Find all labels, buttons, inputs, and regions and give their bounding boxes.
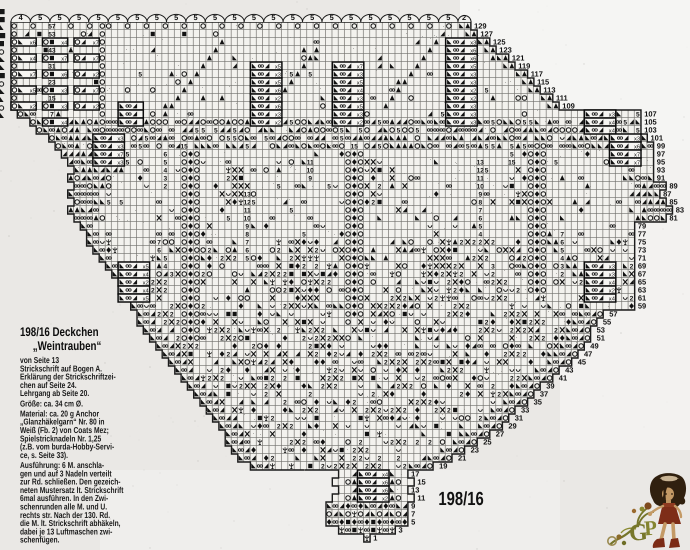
svg-text:59: 59 — [638, 302, 646, 311]
svg-text:2: 2 — [371, 391, 375, 398]
svg-text:2: 2 — [460, 367, 464, 374]
svg-text:27: 27 — [496, 430, 504, 439]
svg-text:2: 2 — [283, 271, 287, 278]
svg-text:5: 5 — [116, 13, 120, 22]
svg-text:2: 2 — [327, 279, 331, 286]
svg-text:5: 5 — [245, 143, 249, 150]
svg-text:5: 5 — [245, 255, 249, 262]
svg-text:x2: x2 — [275, 119, 281, 126]
svg-text:10: 10 — [244, 215, 252, 222]
svg-text:2: 2 — [403, 295, 407, 302]
svg-text:1: 1 — [373, 534, 377, 543]
svg-text:2: 2 — [334, 367, 338, 374]
svg-text:2: 2 — [378, 455, 382, 462]
svg-text:2: 2 — [226, 327, 230, 334]
svg-text:2: 2 — [523, 327, 527, 334]
svg-text:2: 2 — [529, 319, 533, 326]
svg-text:2: 2 — [491, 295, 495, 302]
svg-text:2: 2 — [208, 247, 212, 254]
svg-text:2: 2 — [302, 335, 306, 342]
svg-text:23: 23 — [471, 446, 479, 455]
svg-text:91: 91 — [657, 174, 665, 183]
svg-text:198/16: 198/16 — [438, 489, 483, 510]
svg-text:2: 2 — [491, 239, 495, 246]
svg-text:11: 11 — [477, 175, 484, 182]
svg-text:2: 2 — [371, 351, 375, 358]
svg-text:x2: x2 — [93, 103, 99, 110]
svg-text:2: 2 — [516, 351, 520, 358]
svg-text:2: 2 — [630, 263, 634, 270]
svg-text:2: 2 — [510, 327, 514, 334]
svg-text:2: 2 — [460, 311, 464, 318]
svg-text:5: 5 — [302, 231, 306, 238]
svg-text:x7: x7 — [61, 56, 67, 62]
svg-text:2: 2 — [441, 271, 445, 278]
svg-text:57: 57 — [48, 23, 56, 30]
svg-text:5: 5 — [349, 13, 353, 22]
svg-text:x2: x2 — [30, 103, 36, 110]
svg-text:2: 2 — [428, 399, 432, 406]
svg-text:5: 5 — [201, 127, 205, 134]
svg-text:x2: x2 — [357, 119, 363, 126]
svg-text:x4: x4 — [30, 56, 37, 62]
svg-text:2: 2 — [447, 367, 451, 374]
svg-text:2: 2 — [271, 415, 275, 422]
svg-text:5: 5 — [126, 151, 130, 158]
svg-text:2: 2 — [283, 375, 287, 382]
svg-text:81: 81 — [669, 214, 677, 223]
svg-text:x4: x4 — [61, 40, 68, 46]
svg-text:2: 2 — [365, 447, 369, 454]
svg-text:5: 5 — [264, 135, 268, 142]
svg-text:2: 2 — [478, 239, 482, 246]
svg-text:7: 7 — [560, 231, 564, 238]
svg-text:5: 5 — [415, 127, 419, 134]
svg-text:2: 2 — [478, 415, 482, 422]
svg-text:2: 2 — [397, 359, 401, 366]
svg-text:2: 2 — [151, 279, 155, 286]
svg-text:x3: x3 — [61, 87, 67, 94]
svg-text:2: 2 — [478, 327, 482, 334]
svg-text:2: 2 — [485, 319, 489, 326]
svg-text:2: 2 — [220, 335, 224, 342]
svg-text:2: 2 — [151, 287, 155, 294]
svg-text:113: 113 — [543, 86, 555, 95]
svg-text:127: 127 — [480, 30, 493, 39]
svg-text:2: 2 — [523, 255, 527, 262]
svg-text:x4: x4 — [61, 120, 68, 126]
svg-text:2: 2 — [208, 375, 212, 382]
svg-text:5: 5 — [491, 143, 495, 150]
svg-text:2: 2 — [321, 383, 325, 390]
svg-text:5: 5 — [38, 13, 42, 22]
svg-text:x5: x5 — [30, 88, 36, 94]
svg-text:2: 2 — [403, 407, 407, 414]
svg-text:2: 2 — [283, 287, 287, 294]
svg-text:2: 2 — [579, 279, 583, 286]
svg-text:2: 2 — [289, 255, 293, 262]
svg-text:2: 2 — [308, 343, 312, 350]
svg-text:2: 2 — [378, 407, 382, 414]
svg-text:5: 5 — [427, 13, 431, 22]
svg-text:35: 35 — [534, 398, 542, 407]
svg-text:7: 7 — [157, 239, 161, 246]
svg-text:2: 2 — [504, 351, 508, 358]
svg-text:x2: x2 — [382, 495, 388, 502]
svg-text:11: 11 — [244, 207, 251, 214]
svg-text:2: 2 — [157, 311, 161, 318]
svg-text:2: 2 — [315, 247, 319, 254]
svg-text:123: 123 — [499, 46, 512, 55]
svg-text:2: 2 — [447, 407, 451, 414]
svg-text:5: 5 — [96, 13, 100, 22]
svg-text:2: 2 — [560, 271, 564, 278]
svg-text:19: 19 — [439, 462, 447, 471]
svg-text:2: 2 — [403, 463, 407, 470]
svg-text:6: 6 — [478, 215, 482, 222]
svg-text:2: 2 — [201, 271, 205, 278]
svg-text:2: 2 — [346, 463, 350, 470]
svg-text:2: 2 — [195, 343, 199, 350]
svg-text:2: 2 — [504, 295, 508, 302]
svg-text:2: 2 — [491, 279, 495, 286]
svg-text:4: 4 — [560, 255, 564, 262]
svg-text:2: 2 — [497, 391, 501, 398]
svg-text:5: 5 — [233, 127, 237, 134]
svg-text:5: 5 — [378, 119, 382, 126]
svg-text:2: 2 — [491, 383, 495, 390]
svg-text:5: 5 — [411, 518, 415, 527]
svg-text:5: 5 — [510, 151, 514, 158]
svg-text:2: 2 — [453, 303, 457, 310]
svg-text:2: 2 — [447, 311, 451, 318]
svg-text:8: 8 — [245, 231, 249, 238]
svg-text:2: 2 — [541, 319, 545, 326]
svg-text:2: 2 — [321, 463, 325, 470]
svg-text:2: 2 — [390, 407, 394, 414]
svg-text:2: 2 — [428, 359, 432, 366]
svg-text:6: 6 — [157, 247, 161, 254]
svg-text:5: 5 — [330, 13, 334, 22]
svg-text:2: 2 — [415, 399, 419, 406]
svg-text:5: 5 — [485, 143, 489, 150]
svg-text:5: 5 — [226, 215, 230, 222]
svg-text:21: 21 — [458, 454, 466, 463]
svg-text:2: 2 — [447, 279, 451, 286]
svg-text:5: 5 — [145, 135, 149, 142]
svg-text:2: 2 — [397, 303, 401, 310]
svg-text:x7: x7 — [634, 160, 640, 166]
svg-text:5: 5 — [126, 159, 130, 166]
svg-text:2: 2 — [176, 319, 180, 326]
svg-text:2: 2 — [409, 383, 413, 390]
svg-text:5: 5 — [138, 71, 142, 78]
svg-text:2: 2 — [214, 327, 218, 334]
svg-text:4: 4 — [163, 167, 167, 174]
svg-text:29: 29 — [508, 422, 516, 431]
svg-text:2: 2 — [352, 399, 356, 406]
svg-text:2: 2 — [302, 439, 306, 446]
svg-text:x5: x5 — [143, 296, 149, 302]
svg-text:2: 2 — [390, 295, 394, 302]
svg-text:2: 2 — [264, 271, 268, 278]
svg-text:11: 11 — [307, 159, 314, 166]
svg-text:2: 2 — [434, 407, 438, 414]
svg-text:2: 2 — [327, 335, 331, 342]
svg-text:2: 2 — [182, 343, 186, 350]
svg-text:ce, s. Seite 33).: ce, s. Seite 33). — [20, 450, 68, 460]
svg-text:7: 7 — [245, 239, 249, 246]
svg-text:2: 2 — [453, 287, 457, 294]
svg-text:13: 13 — [244, 191, 252, 198]
svg-text:2: 2 — [504, 311, 508, 318]
svg-text:2: 2 — [630, 295, 634, 302]
svg-text:2: 2 — [252, 343, 256, 350]
svg-text:2: 2 — [239, 383, 243, 390]
svg-text:2: 2 — [302, 407, 306, 414]
svg-text:x4: x4 — [609, 296, 616, 302]
svg-text:5: 5 — [623, 119, 627, 126]
svg-text:2: 2 — [264, 359, 268, 366]
svg-text:2: 2 — [334, 463, 338, 470]
svg-text:2: 2 — [554, 327, 558, 334]
svg-text:5: 5 — [523, 119, 527, 126]
svg-text:„Weintrauben“: „Weintrauben“ — [33, 339, 102, 353]
svg-text:6: 6 — [163, 151, 167, 158]
svg-text:5: 5 — [252, 199, 256, 206]
svg-text:5: 5 — [194, 13, 198, 22]
svg-text:2: 2 — [428, 439, 432, 446]
svg-text:5: 5 — [214, 127, 218, 134]
svg-text:2: 2 — [220, 375, 224, 382]
svg-text:5: 5 — [135, 13, 139, 22]
svg-text:2: 2 — [434, 295, 438, 302]
svg-text:2: 2 — [163, 279, 167, 286]
svg-text:2: 2 — [176, 335, 180, 342]
svg-text:2: 2 — [334, 383, 338, 390]
svg-text:2: 2 — [277, 247, 281, 254]
svg-text:2: 2 — [422, 375, 426, 382]
svg-text:5: 5 — [636, 111, 640, 118]
svg-text:5: 5 — [174, 13, 178, 22]
svg-text:2: 2 — [485, 255, 489, 262]
svg-text:5: 5 — [289, 207, 293, 214]
svg-text:5: 5 — [271, 13, 275, 22]
svg-text:2: 2 — [308, 391, 312, 398]
svg-text:5: 5 — [388, 13, 392, 22]
svg-text:P: P — [643, 516, 658, 541]
svg-text:5: 5 — [446, 13, 450, 22]
svg-text:198/16 Deckchen: 198/16 Deckchen — [20, 325, 99, 339]
svg-text:x7: x7 — [93, 56, 99, 62]
svg-text:x3: x3 — [117, 159, 123, 166]
svg-text:2: 2 — [415, 351, 419, 358]
svg-text:5: 5 — [163, 159, 167, 166]
svg-text:5: 5 — [291, 13, 295, 22]
svg-text:5: 5 — [478, 223, 482, 230]
svg-text:2: 2 — [315, 407, 319, 414]
svg-text:5: 5 — [554, 159, 558, 166]
svg-text:2: 2 — [384, 303, 388, 310]
svg-text:9: 9 — [245, 223, 249, 230]
svg-text:2: 2 — [359, 439, 363, 446]
svg-text:Lehrgang ab Seite 20.: Lehrgang ab Seite 20. — [20, 388, 89, 398]
svg-text:2: 2 — [277, 423, 281, 430]
svg-text:10: 10 — [477, 183, 485, 190]
svg-text:11: 11 — [417, 494, 425, 503]
svg-text:10: 10 — [307, 167, 315, 174]
svg-text:2: 2 — [233, 255, 237, 262]
svg-text:5: 5 — [466, 143, 470, 150]
svg-text:13: 13 — [477, 159, 485, 166]
svg-text:5: 5 — [359, 127, 363, 134]
svg-text:2: 2 — [271, 375, 275, 382]
svg-text:45: 45 — [578, 358, 586, 367]
svg-text:2: 2 — [340, 375, 344, 382]
svg-text:3: 3 — [560, 263, 564, 270]
svg-text:2: 2 — [415, 439, 419, 446]
svg-text:25: 25 — [483, 438, 491, 447]
svg-text:2: 2 — [233, 335, 237, 342]
svg-text:5: 5 — [485, 87, 489, 94]
svg-text:2: 2 — [226, 175, 230, 182]
svg-text:2: 2 — [460, 271, 464, 278]
svg-text:2: 2 — [163, 183, 167, 190]
svg-text:2: 2 — [277, 271, 281, 278]
svg-text:41: 41 — [559, 374, 567, 383]
svg-text:15: 15 — [181, 143, 189, 150]
svg-text:5: 5 — [407, 13, 411, 22]
svg-text:2: 2 — [390, 439, 394, 446]
svg-text:5: 5 — [378, 143, 382, 150]
svg-text:2: 2 — [397, 455, 401, 462]
svg-text:9: 9 — [478, 191, 482, 198]
svg-text:2: 2 — [271, 455, 275, 462]
svg-text:2: 2 — [504, 279, 508, 286]
svg-text:2: 2 — [359, 455, 363, 462]
svg-text:2: 2 — [384, 351, 388, 358]
svg-text:schenfügen.: schenfügen. — [20, 535, 59, 545]
svg-text:5: 5 — [163, 255, 167, 262]
svg-text:5: 5 — [226, 135, 230, 142]
svg-text:5: 5 — [252, 13, 256, 22]
svg-text:15: 15 — [508, 159, 516, 166]
svg-text:2: 2 — [315, 351, 319, 358]
svg-text:2: 2 — [277, 327, 281, 334]
svg-text:2: 2 — [466, 303, 470, 310]
svg-text:5: 5 — [340, 127, 344, 134]
svg-text:3: 3 — [163, 175, 167, 182]
svg-text:5: 5 — [560, 247, 564, 254]
svg-text:5: 5 — [441, 111, 445, 118]
svg-text:x6: x6 — [61, 71, 67, 78]
svg-text:2: 2 — [220, 255, 224, 262]
svg-text:5: 5 — [397, 127, 401, 134]
svg-text:5: 5 — [277, 183, 281, 190]
svg-text:5: 5 — [213, 13, 217, 22]
svg-text:4: 4 — [163, 263, 167, 270]
svg-text:2: 2 — [163, 319, 167, 326]
svg-text:2: 2 — [403, 439, 407, 446]
svg-text:2: 2 — [529, 335, 533, 342]
svg-text:x6: x6 — [30, 39, 36, 46]
svg-text:2: 2 — [334, 351, 338, 358]
svg-text:2: 2 — [315, 263, 319, 270]
svg-text:5: 5 — [523, 143, 527, 150]
svg-text:8: 8 — [478, 199, 482, 206]
svg-text:5: 5 — [529, 119, 533, 126]
svg-text:5: 5 — [289, 71, 293, 78]
svg-text:12: 12 — [477, 167, 485, 174]
svg-text:15: 15 — [351, 143, 359, 150]
svg-text:2: 2 — [321, 327, 325, 334]
svg-text:5: 5 — [155, 13, 159, 22]
svg-text:2: 2 — [308, 327, 312, 334]
svg-text:2: 2 — [491, 327, 495, 334]
svg-text:3: 3 — [399, 526, 403, 535]
svg-text:5: 5 — [289, 119, 293, 126]
svg-text:9: 9 — [308, 175, 312, 182]
svg-text:2: 2 — [378, 183, 382, 190]
svg-text:5: 5 — [310, 13, 314, 22]
svg-text:x7: x7 — [93, 88, 99, 94]
svg-text:2: 2 — [397, 383, 401, 390]
svg-text:x3: x3 — [470, 119, 476, 126]
svg-text:2: 2 — [516, 311, 520, 318]
svg-text:2: 2 — [289, 423, 293, 430]
svg-text:5: 5 — [485, 167, 489, 174]
svg-text:2: 2 — [510, 375, 514, 382]
svg-text:2: 2 — [462, 13, 466, 22]
svg-text:2: 2 — [226, 351, 230, 358]
svg-text:Größe: ca. 34 cm Ø.: Größe: ca. 34 cm Ø. — [20, 398, 83, 408]
svg-text:2: 2 — [170, 303, 174, 310]
svg-text:2: 2 — [460, 239, 464, 246]
svg-text:2: 2 — [460, 391, 464, 398]
svg-text:119: 119 — [518, 62, 530, 71]
svg-text:2: 2 — [523, 351, 527, 358]
svg-text:2: 2 — [453, 263, 457, 270]
svg-text:2: 2 — [283, 303, 287, 310]
svg-text:2: 2 — [201, 303, 205, 310]
svg-text:2: 2 — [516, 375, 520, 382]
svg-text:5: 5 — [119, 199, 123, 206]
svg-text:2: 2 — [327, 375, 331, 382]
svg-text:5: 5 — [233, 135, 237, 142]
svg-text:5: 5 — [107, 199, 111, 206]
svg-text:6: 6 — [560, 239, 564, 246]
svg-text:2: 2 — [264, 383, 268, 390]
svg-text:5: 5 — [232, 13, 236, 22]
svg-text:3: 3 — [491, 263, 495, 270]
svg-text:2: 2 — [491, 271, 495, 278]
svg-text:5: 5 — [327, 183, 331, 190]
svg-text:5: 5 — [340, 135, 344, 142]
svg-text:2: 2 — [415, 359, 419, 366]
svg-text:2: 2 — [365, 407, 369, 414]
svg-text:2: 2 — [302, 263, 306, 270]
svg-text:5: 5 — [195, 127, 199, 134]
svg-text:2: 2 — [516, 287, 520, 294]
svg-text:x7: x7 — [93, 40, 99, 46]
svg-text:2: 2 — [321, 279, 325, 286]
svg-text:2: 2 — [541, 335, 545, 342]
svg-text:5: 5 — [510, 143, 514, 150]
svg-text:2: 2 — [352, 447, 356, 454]
svg-text:5: 5 — [58, 13, 62, 22]
svg-text:2: 2 — [283, 399, 287, 406]
svg-text:2: 2 — [472, 239, 476, 246]
